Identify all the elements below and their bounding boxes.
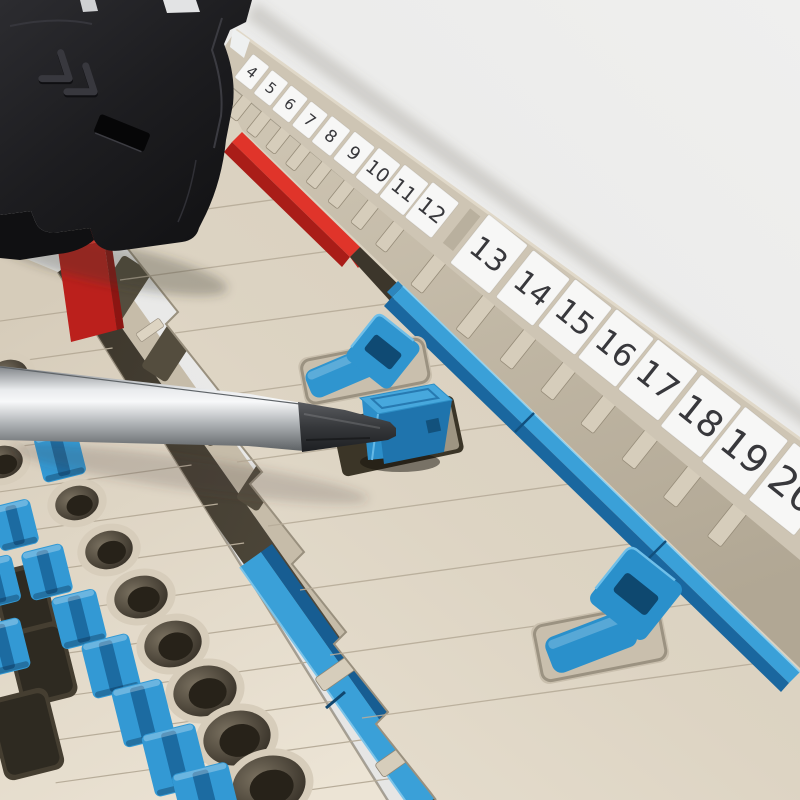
product-image: 4567891011121314151617181920	[0, 0, 800, 800]
terminal-block-scene: 4567891011121314151617181920	[0, 0, 800, 800]
